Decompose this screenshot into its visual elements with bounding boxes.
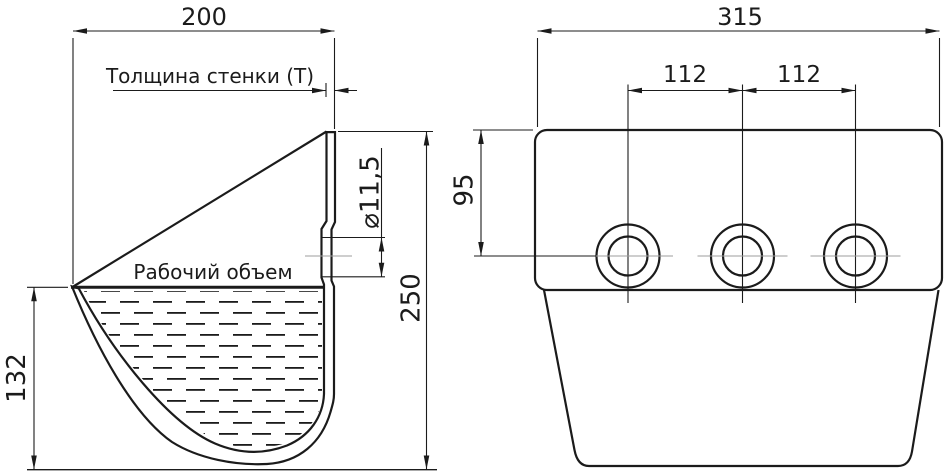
wall-thickness-callout: Толщина стенки (Т)	[105, 64, 357, 97]
dim-total-height-250: 250	[338, 132, 433, 470]
front-upper-band	[535, 130, 942, 290]
dim-95-text: 95	[450, 173, 480, 206]
wall-thickness-label: Толщина стенки (Т)	[105, 64, 314, 88]
dim-hole-spacing: 112 112	[628, 62, 856, 91]
working-volume-fill	[76, 288, 326, 464]
dim-112-left-text: 112	[663, 62, 707, 88]
technical-drawing-page: 200 Толщина стенки (Т) Рабочий объем ⌀11…	[0, 0, 952, 472]
dim-250-text: 250	[397, 273, 427, 323]
working-volume-label: Рабочий объем	[133, 260, 292, 284]
dim-112-right-text: 112	[777, 62, 821, 88]
dim-top-to-hole-95: 95	[450, 130, 597, 256]
dim-315-text: 315	[717, 3, 763, 31]
hole-centerlines	[583, 85, 901, 304]
dim-132-text: 132	[2, 353, 32, 403]
bucket-drawing-canvas: 200 Толщина стенки (Т) Рабочий объем ⌀11…	[0, 0, 952, 472]
front-view: 315 112 112 95	[450, 3, 943, 466]
dim-hole-diameter-text: ⌀11,5	[356, 155, 386, 229]
dim-width-315: 315	[538, 3, 940, 127]
wall-hole-window	[323, 238, 330, 277]
dim-200-text: 200	[181, 3, 227, 31]
front-lower-body	[544, 290, 939, 466]
dim-width-200: 200	[73, 3, 335, 284]
dim-fill-height-132: 132	[2, 287, 68, 469]
side-view: 200 Толщина стенки (Т) Рабочий объем ⌀11…	[2, 3, 437, 470]
